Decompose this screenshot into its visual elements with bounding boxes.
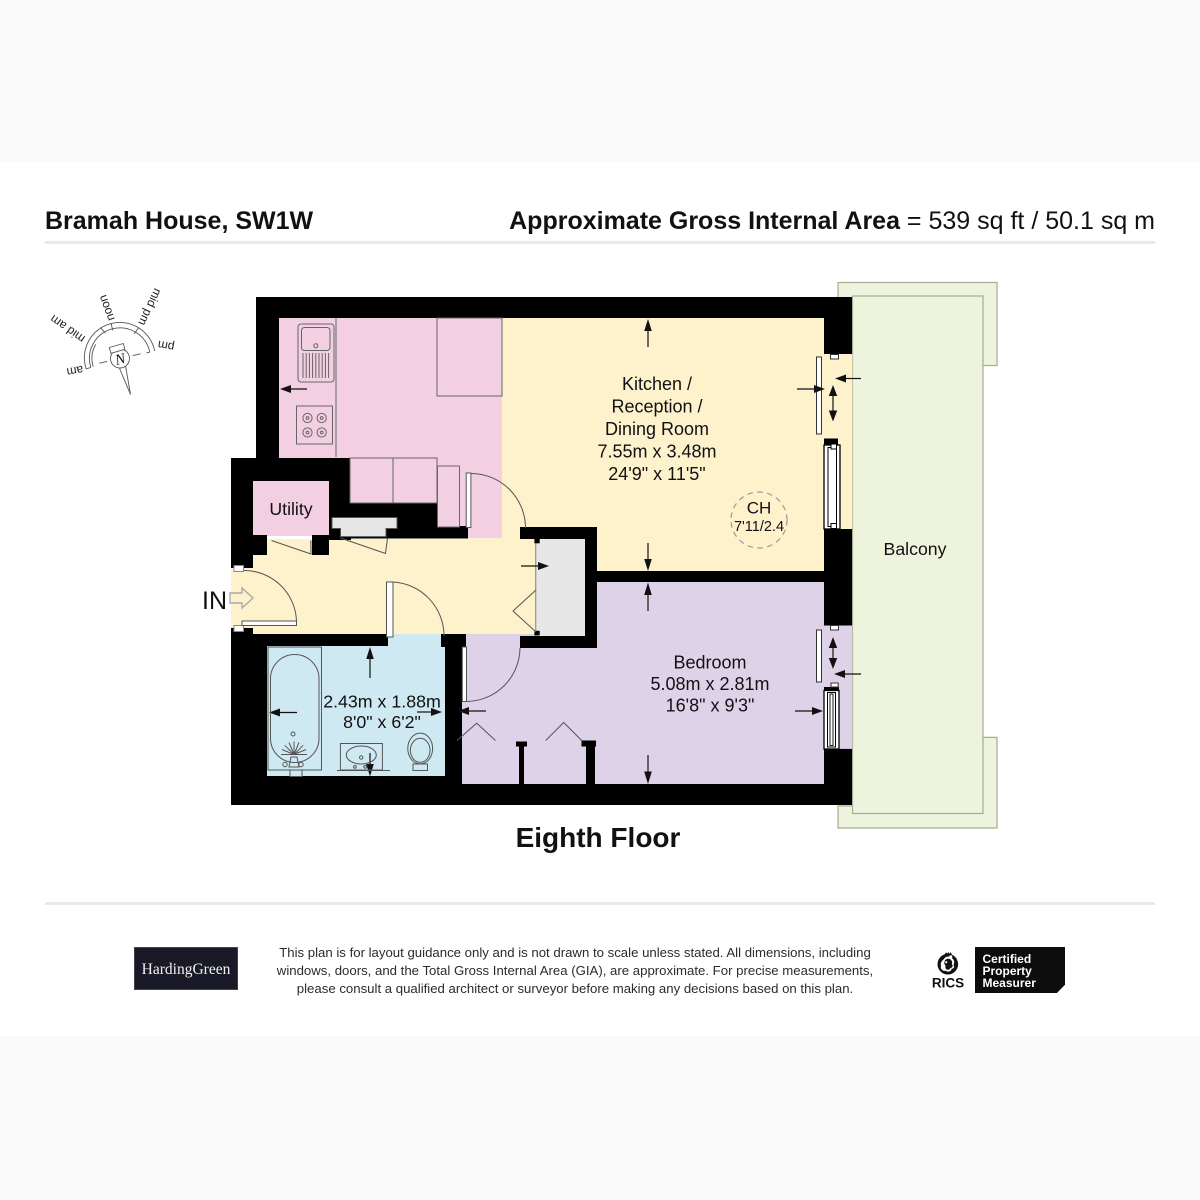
svg-text:Utility: Utility	[269, 499, 312, 519]
svg-text:Kitchen /: Kitchen /	[622, 374, 692, 394]
svg-text:7.55m x 3.48m: 7.55m x 3.48m	[597, 442, 716, 462]
svg-text:8'0" x 6'2": 8'0" x 6'2"	[343, 712, 421, 732]
svg-text:Balcony: Balcony	[884, 539, 947, 559]
svg-text:mid pm: mid pm	[135, 286, 164, 328]
svg-text:pm: pm	[157, 338, 176, 355]
svg-text:5.08m x 2.81m: 5.08m x 2.81m	[650, 674, 769, 694]
svg-text:16'8" x 9'3": 16'8" x 9'3"	[666, 696, 755, 716]
svg-text:Bedroom: Bedroom	[673, 653, 746, 673]
svg-text:Reception /: Reception /	[611, 397, 702, 417]
svg-text:CH: CH	[747, 499, 772, 518]
svg-text:IN: IN	[202, 587, 227, 615]
svg-text:am: am	[66, 363, 85, 380]
svg-text:mid am: mid am	[47, 312, 87, 346]
svg-text:noon: noon	[95, 293, 117, 323]
svg-text:24'9" x 11'5": 24'9" x 11'5"	[608, 464, 705, 484]
svg-text:7'11/2.4: 7'11/2.4	[734, 519, 784, 535]
svg-text:2.43m x 1.88m: 2.43m x 1.88m	[323, 692, 441, 712]
svg-text:Dining Room: Dining Room	[605, 419, 709, 439]
